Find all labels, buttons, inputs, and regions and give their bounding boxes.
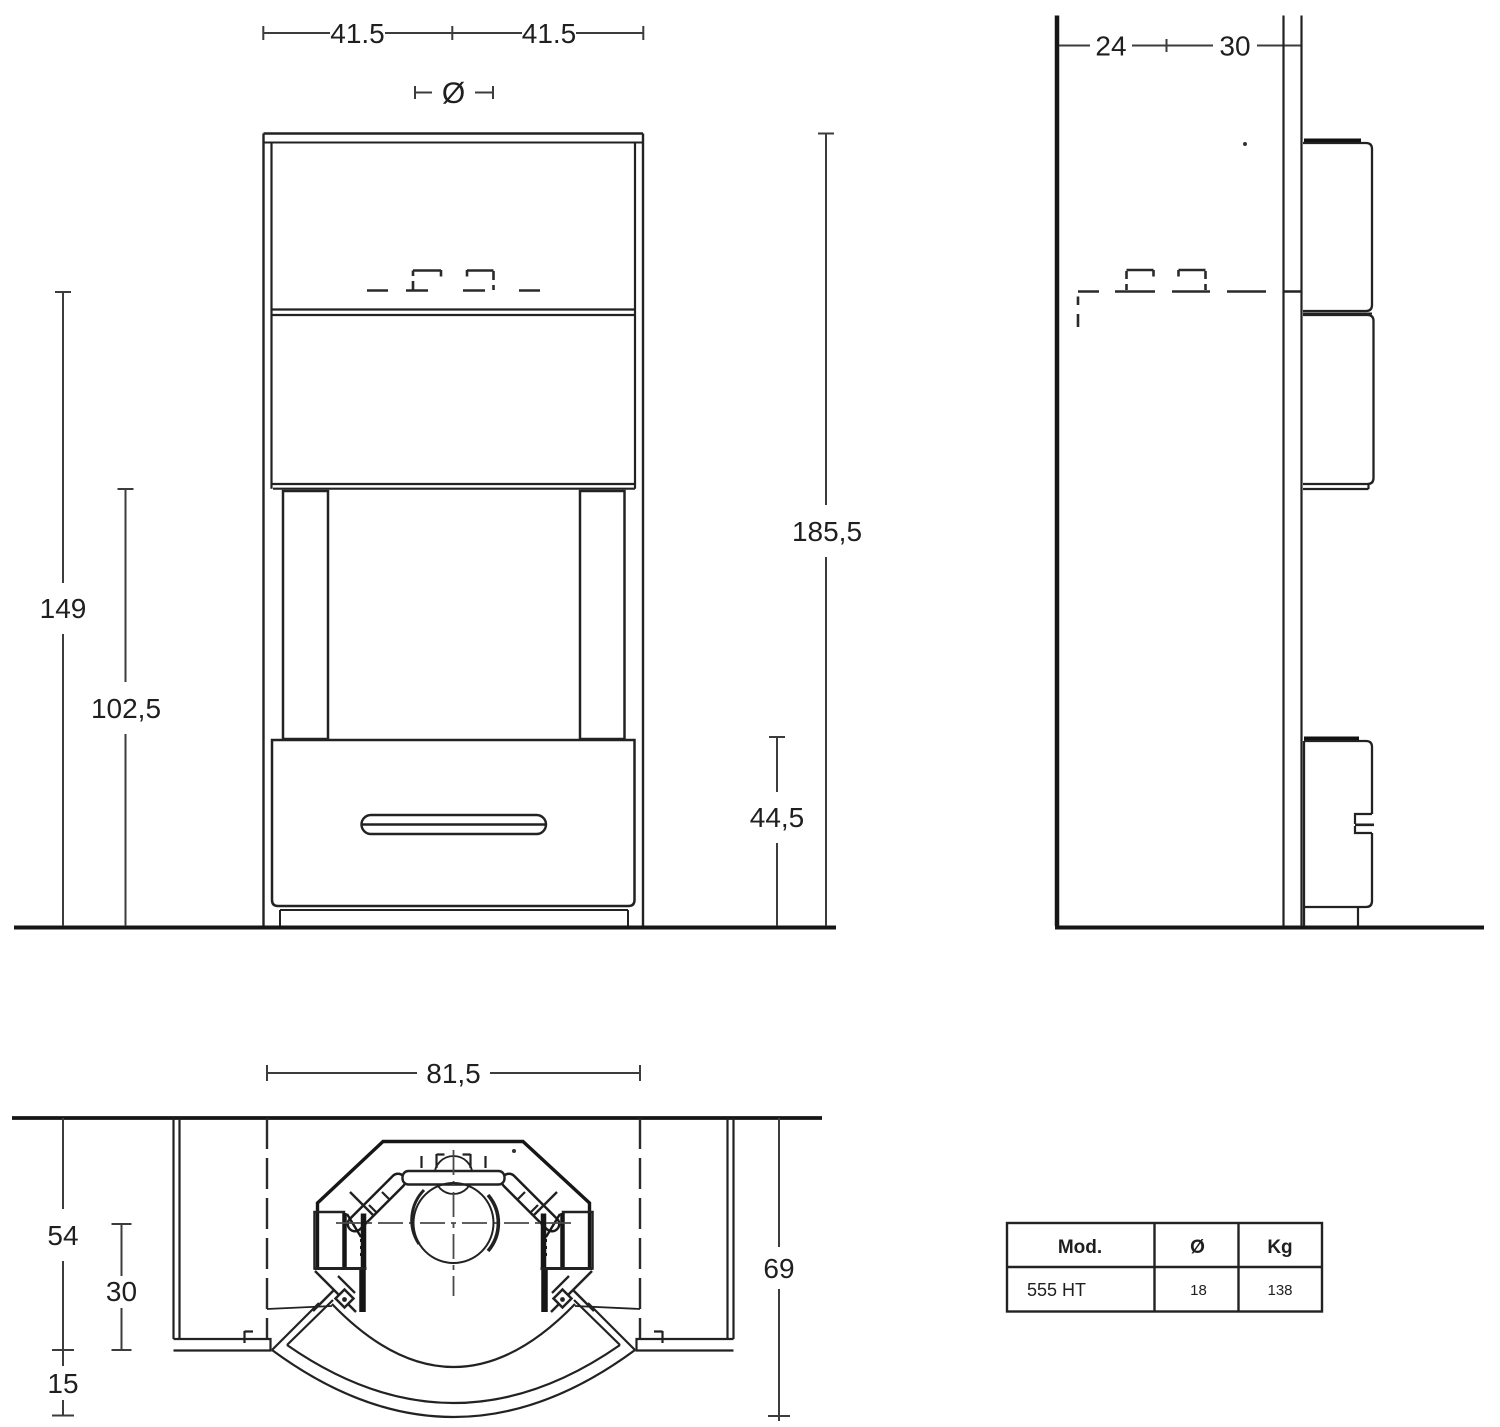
svg-text:Ø: Ø [442, 77, 465, 110]
svg-text:138: 138 [1267, 1282, 1292, 1299]
svg-text:Ø: Ø [1190, 1237, 1205, 1258]
svg-text:555 HT: 555 HT [1027, 1280, 1086, 1300]
svg-text:69: 69 [763, 1253, 794, 1284]
svg-text:41.5: 41.5 [522, 18, 577, 49]
svg-text:Kg: Kg [1267, 1237, 1292, 1258]
svg-text:18: 18 [1190, 1282, 1207, 1299]
svg-text:102,5: 102,5 [91, 693, 161, 724]
svg-text:15: 15 [47, 1368, 78, 1399]
svg-text:54: 54 [47, 1220, 78, 1251]
svg-text:185,5: 185,5 [792, 516, 862, 547]
svg-text:24: 24 [1095, 31, 1126, 62]
svg-text:Mod.: Mod. [1058, 1237, 1102, 1258]
svg-text:30: 30 [1219, 31, 1250, 62]
svg-text:30: 30 [106, 1276, 137, 1307]
svg-text:149: 149 [40, 593, 87, 624]
svg-text:41.5: 41.5 [330, 18, 385, 49]
svg-text:44,5: 44,5 [750, 802, 805, 833]
svg-text:81,5: 81,5 [426, 1058, 481, 1089]
